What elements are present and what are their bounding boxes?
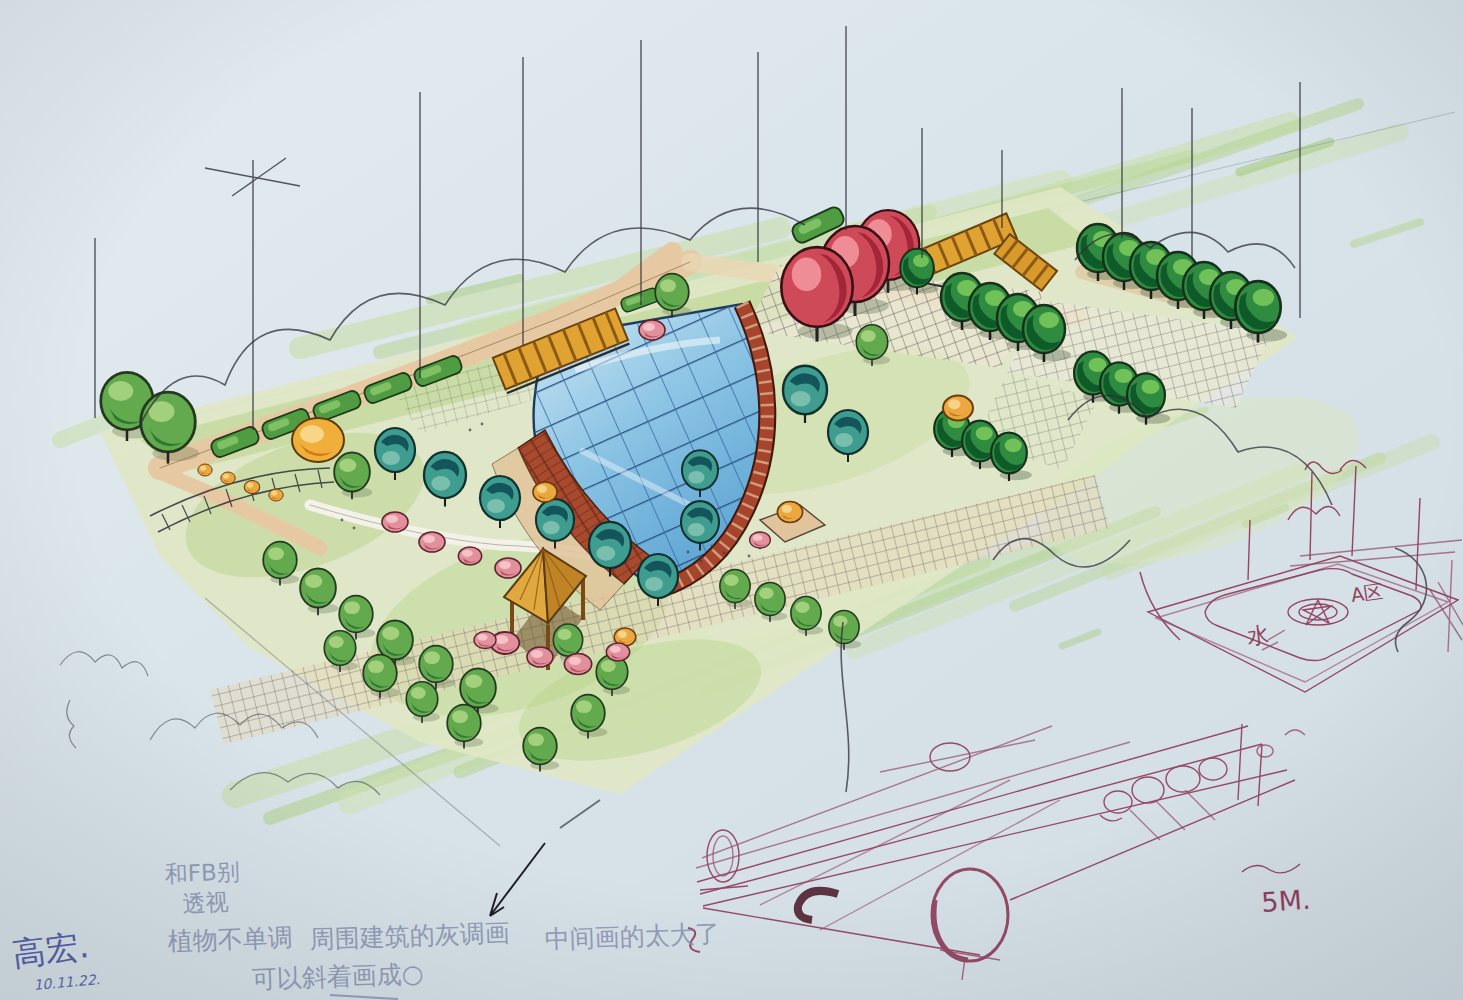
sketch-photo: 和FB别 透视 植物不单调 周围建筑的灰调画 中间画的太大了 可以斜着画成○ 高…: [0, 0, 1463, 1000]
photo-vignette: [0, 0, 1463, 1000]
